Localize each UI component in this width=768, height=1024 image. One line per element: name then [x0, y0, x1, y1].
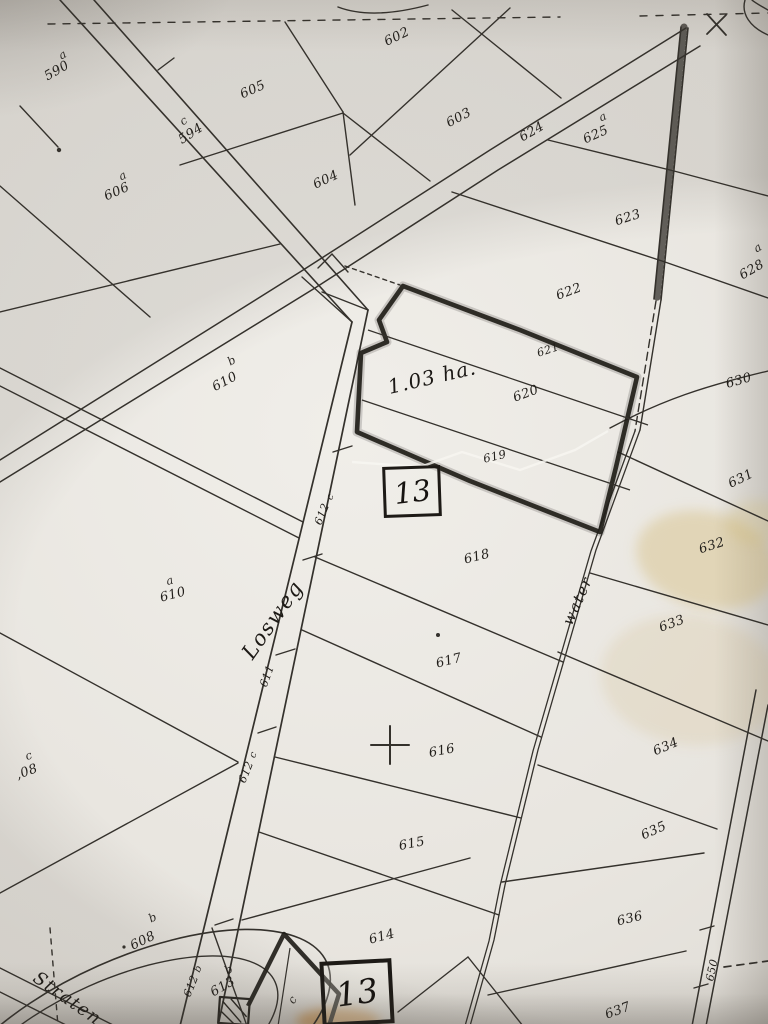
parcel-letter-628a: a [752, 241, 764, 255]
road-parcel-611: 611 [258, 664, 276, 689]
road-parcel-612-lower: 612 [237, 760, 256, 785]
parcel-label-635: 635 [639, 820, 668, 843]
parcel-letter-c-building: c [286, 994, 299, 1006]
road-parcel-650: 650 [704, 958, 719, 982]
area-label: 1.03 ha. [386, 357, 478, 397]
parcel-label-622: 622 [554, 281, 583, 302]
sheet-number-box-lower: 13 [319, 958, 394, 1024]
cadastral-map-photo: a590c594605602603a606604624a625623622a62… [0, 0, 768, 1024]
parcel-label-619: 619 [482, 449, 507, 465]
parcel-label-617: 617 [435, 652, 464, 671]
road-parcel-612-upper: 612 [313, 502, 332, 527]
road-parcel-letter-c-upper: c [325, 492, 337, 501]
parcel-label-610a: 610 [159, 585, 188, 604]
parcel-label-621: 621 [536, 341, 561, 358]
sheet-number: 13 [333, 970, 380, 1014]
parcel-label-625: 625 [581, 124, 610, 147]
parcel-label-610b: 610 [210, 370, 239, 394]
road-parcel-letter-c-lower: c [248, 750, 260, 759]
road-parcel-612b: 612 [182, 974, 201, 999]
parcel-label-603: 603 [444, 106, 473, 130]
parcel-label-631: 631 [726, 467, 755, 490]
parcel-label-613: 613 [208, 975, 237, 999]
parcel-letter-608b: b [147, 911, 159, 925]
sheet-number-box-upper: 13 [382, 465, 442, 518]
parcel-label-608: 608 [128, 929, 157, 952]
parcel-label-623: 623 [613, 208, 642, 228]
parcel-label-628: 628 [737, 258, 766, 282]
parcel-label-605: 605 [238, 79, 267, 102]
parcel-label-08: ,08 [14, 762, 39, 782]
parcel-label-633: 633 [657, 613, 686, 634]
sheet-number: 13 [392, 472, 433, 510]
parcel-label-618: 618 [463, 548, 492, 567]
road-name-losweg: Losweg [239, 577, 308, 663]
parcel-label-632: 632 [697, 536, 726, 556]
road-parcel-letter-b: b [193, 964, 205, 974]
parcel-label-616: 616 [428, 742, 456, 760]
parcel-letter-625a: a [597, 110, 608, 123]
street-name-straten: Straten [30, 969, 105, 1024]
parcel-label-636: 636 [616, 910, 645, 929]
parcel-label-602: 602 [382, 25, 411, 48]
parcel-label-594: 594 [176, 121, 205, 146]
parcel-label-620: 620 [511, 383, 540, 404]
parcel-label-637: 637 [603, 1000, 632, 1021]
parcel-label-630: 630 [725, 371, 754, 391]
parcel-label-590: 590 [42, 59, 71, 83]
parcel-label-606: 606 [102, 181, 131, 204]
parcel-label-614: 614 [368, 927, 397, 946]
parcel-letter-610b: b [226, 354, 239, 368]
parcel-label-634: 634 [651, 736, 680, 758]
parcel-label-604: 604 [311, 169, 340, 192]
parcel-letter-610a: a [165, 574, 175, 587]
water-label: water [561, 574, 596, 627]
parcel-label-624: 624 [517, 120, 546, 144]
parcel-label-615: 615 [398, 835, 426, 853]
